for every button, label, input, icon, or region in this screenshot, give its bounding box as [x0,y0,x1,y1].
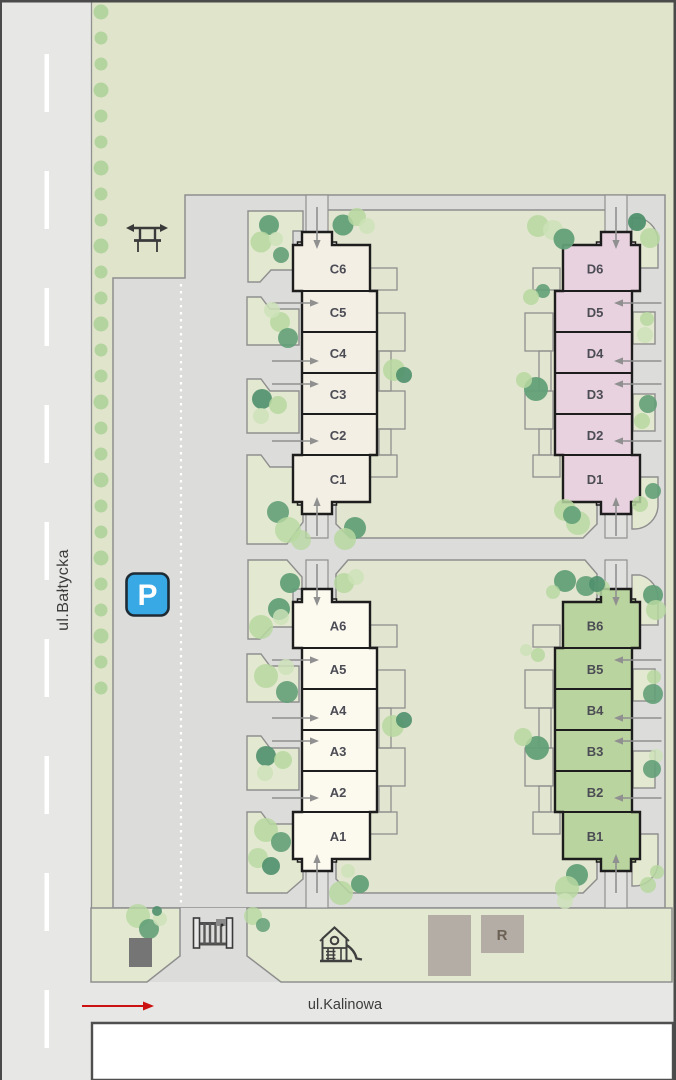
svg-text:D6: D6 [587,262,604,277]
svg-text:C5: C5 [330,305,347,320]
svg-text:C3: C3 [330,387,347,402]
svg-text:A2: A2 [330,785,347,800]
svg-text:ul.Kalinowa: ul.Kalinowa [308,997,383,1013]
svg-text:ul.Bałtycka: ul.Bałtycka [55,549,72,631]
svg-text:B3: B3 [587,744,604,759]
svg-text:A3: A3 [330,744,347,759]
svg-text:C6: C6 [330,262,347,277]
svg-text:A1: A1 [330,829,347,844]
svg-text:C4: C4 [330,346,347,361]
svg-text:B2: B2 [587,785,604,800]
svg-text:B6: B6 [587,619,604,634]
svg-text:B1: B1 [587,829,604,844]
svg-text:A6: A6 [330,619,347,634]
svg-text:C2: C2 [330,428,347,443]
svg-text:P: P [137,579,157,612]
svg-text:A4: A4 [330,703,347,718]
svg-text:D4: D4 [587,346,604,361]
svg-text:B5: B5 [587,662,604,677]
svg-text:R: R [497,927,508,944]
svg-text:D1: D1 [587,472,604,487]
svg-text:D3: D3 [587,387,604,402]
svg-text:B4: B4 [587,703,604,718]
svg-text:A5: A5 [330,662,347,677]
svg-text:D2: D2 [587,428,604,443]
svg-text:C1: C1 [330,472,347,487]
svg-text:D5: D5 [587,305,604,320]
